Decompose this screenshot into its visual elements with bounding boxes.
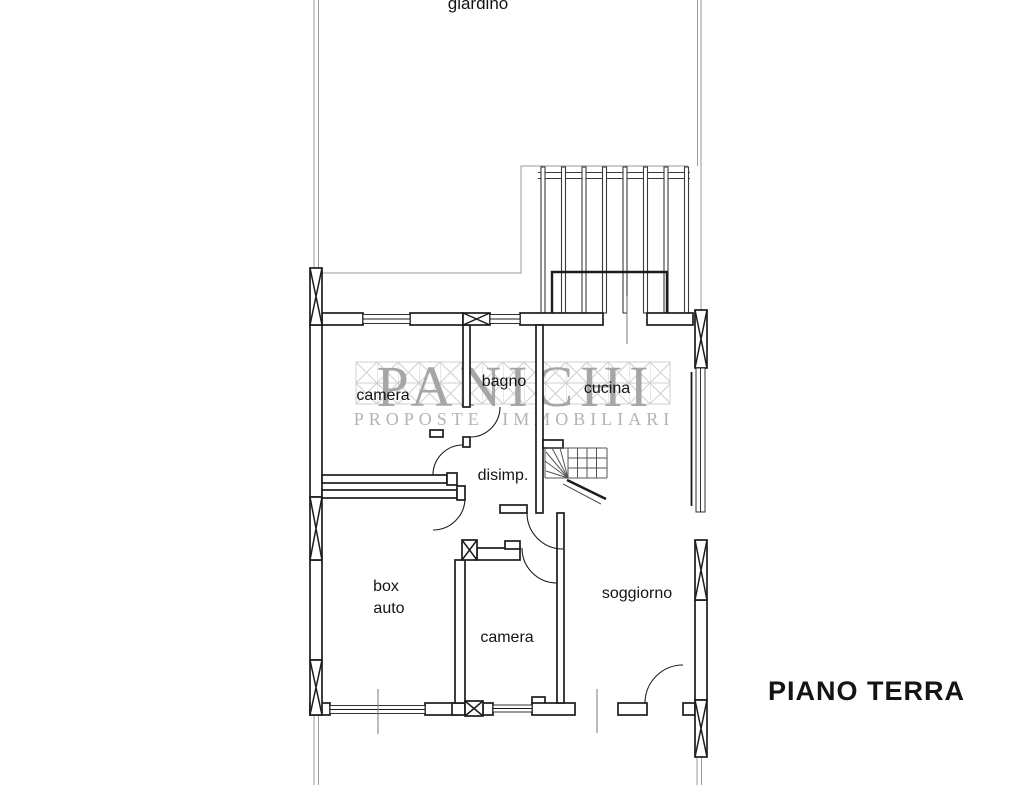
room-label-cucina: cucina bbox=[584, 380, 630, 397]
entrance-landing bbox=[552, 272, 667, 313]
door-arc-box-auto bbox=[433, 498, 465, 530]
room-label-soggiorno: soggiorno bbox=[602, 585, 672, 602]
room-label-camera-top: camera bbox=[356, 387, 409, 404]
room-label-disimp: disimp. bbox=[478, 467, 529, 484]
floor-plan-canvas: PANICHI PROPOSTE IMMOBILIARI bbox=[0, 0, 1024, 785]
room-label-box-auto-line1: box bbox=[373, 578, 399, 595]
door-arc-camera-bottom bbox=[522, 548, 557, 583]
room-label-camera-bottom: camera bbox=[480, 629, 533, 646]
plan-title: PIANO TERRA bbox=[768, 676, 965, 706]
room-label-bagno: bagno bbox=[482, 373, 527, 390]
room-label-box-auto-line2: auto bbox=[373, 600, 404, 617]
room-label-giardino: giardino bbox=[448, 0, 509, 13]
pergola bbox=[538, 167, 690, 313]
watermark-tagline: PROPOSTE IMMOBILIARI bbox=[354, 409, 675, 429]
door-arc-camera-top bbox=[433, 445, 463, 475]
door-arc-soggiorno-entry bbox=[645, 665, 683, 703]
floor-plan-page: PANICHI PROPOSTE IMMOBILIARI bbox=[0, 0, 1024, 785]
staircase bbox=[545, 448, 607, 504]
